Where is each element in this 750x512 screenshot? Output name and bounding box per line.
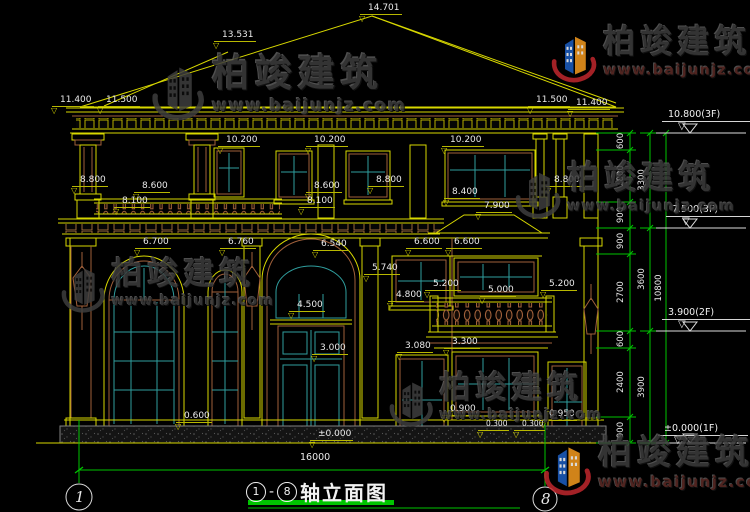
dimension-chain: [66, 124, 746, 511]
corner-pilaster: [584, 134, 598, 218]
axis-bubble-8: [533, 487, 557, 511]
title-underline: [248, 500, 394, 505]
third-floor: [58, 133, 598, 426]
elevation-marker-lines: [656, 124, 746, 443]
balcony: [426, 296, 558, 348]
elevation-drawing: [0, 0, 750, 512]
third-floor-wide-window: [442, 150, 538, 206]
rightwing-2f-window: [450, 256, 542, 296]
pilaster: [410, 145, 426, 218]
corner-pilaster: [580, 238, 602, 418]
terrace-balustrade: [94, 199, 282, 218]
entrance-arch: [262, 234, 360, 443]
third-floor-window: [274, 151, 314, 204]
pilaster: [318, 145, 334, 218]
lantern-ornament: [73, 252, 91, 330]
third-floor-window: [344, 151, 392, 204]
axis-bubble-1: [66, 484, 92, 510]
plinth: [36, 420, 622, 443]
lantern-ornament: [584, 284, 598, 354]
cad-elevation-canvas: 16000 1 8 1 - 8 轴立面图 14.70113.53111.4001…: [0, 0, 750, 512]
lower-floors: [36, 234, 622, 443]
floor-cornice: [58, 219, 444, 238]
terrace-column: [72, 134, 104, 218]
arched-window: [100, 256, 188, 431]
hip-roof: [80, 16, 616, 107]
eave-cornice: [66, 108, 624, 133]
pilaster: [360, 238, 380, 418]
chain-ticks: [627, 130, 669, 446]
corner-pilaster: [66, 238, 96, 426]
bay-canopy-roof: [428, 215, 550, 238]
terrace-door: [214, 148, 244, 197]
rightwing-1f-window: [448, 352, 542, 420]
lantern-ornament: [244, 252, 260, 330]
arched-window-narrow: [204, 270, 246, 431]
column: [553, 134, 567, 218]
